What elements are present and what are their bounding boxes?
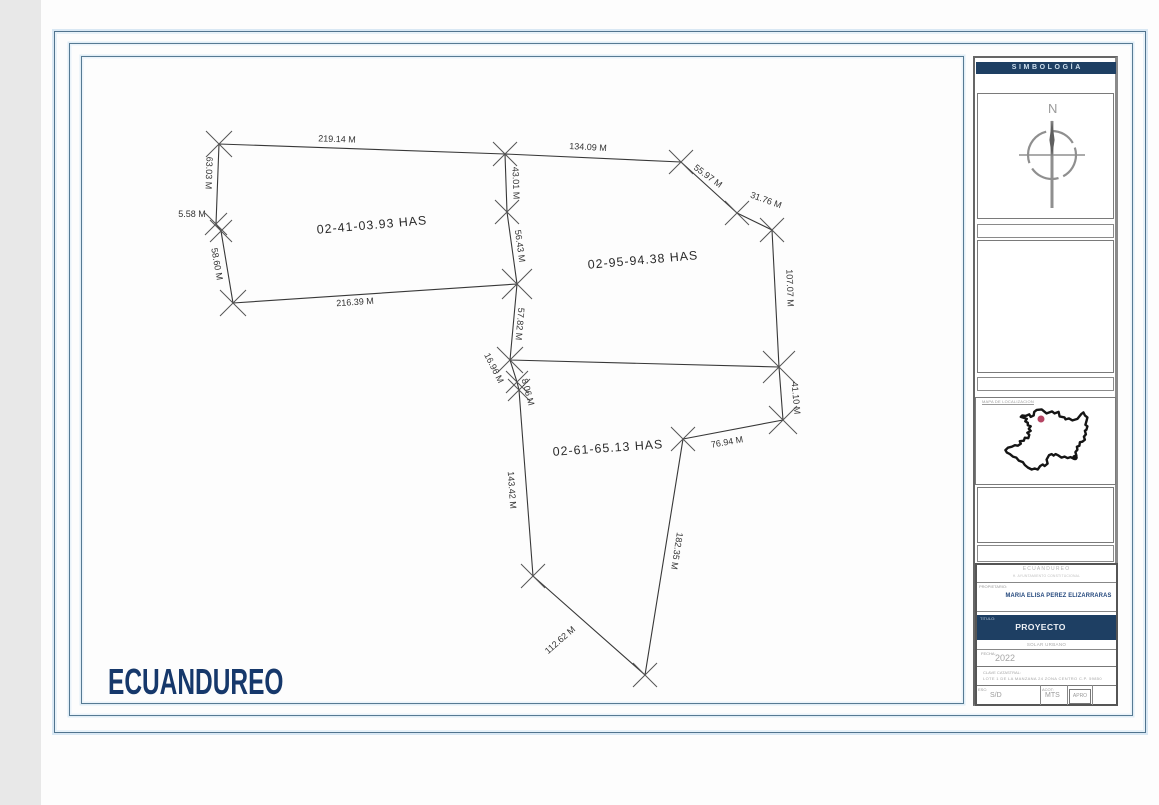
svg-text:02-41-03.93 HAS: 02-41-03.93 HAS — [316, 213, 428, 237]
svg-text:41.10 M: 41.10 M — [790, 381, 803, 414]
svg-text:182.35 M: 182.35 M — [669, 532, 685, 571]
svg-text:N: N — [1048, 101, 1057, 116]
svg-text:02-61-65.13 HAS: 02-61-65.13 HAS — [552, 437, 663, 459]
svg-text:76.94 M: 76.94 M — [710, 434, 744, 449]
svg-text:8.06 M: 8.06 M — [520, 377, 537, 406]
svg-text:107.07 M: 107.07 M — [784, 269, 795, 307]
svg-text:143.42 M: 143.42 M — [506, 471, 519, 509]
svg-text:216.39 M: 216.39 M — [336, 296, 374, 309]
svg-text:43.01 M: 43.01 M — [510, 167, 521, 200]
svg-text:58.60 M: 58.60 M — [209, 247, 224, 281]
svg-text:56.43 M: 56.43 M — [513, 229, 527, 263]
svg-text:63.03 M: 63.03 M — [203, 157, 214, 190]
svg-text:57.82 M: 57.82 M — [514, 307, 527, 340]
svg-text:219.14 M: 219.14 M — [318, 133, 356, 144]
svg-text:02-95-94.38 HAS: 02-95-94.38 HAS — [587, 248, 699, 272]
svg-text:112.62 M: 112.62 M — [543, 624, 577, 656]
svg-text:5.58 M: 5.58 M — [178, 209, 206, 219]
svg-text:31.76 M: 31.76 M — [749, 190, 783, 211]
svg-text:134.09 M: 134.09 M — [569, 141, 607, 153]
